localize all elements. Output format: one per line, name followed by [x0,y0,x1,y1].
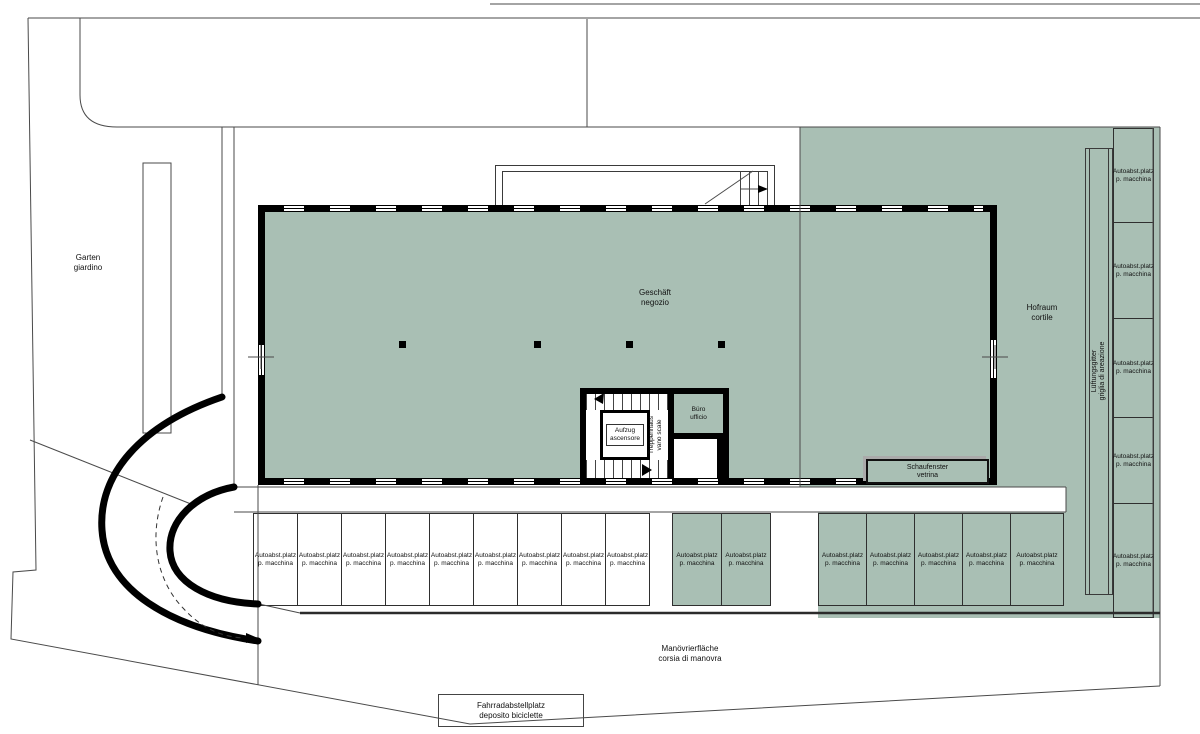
west-wall-window [258,345,265,375]
parking-stall: Autoabst.platzp. macchina [385,513,430,606]
stall-label-it: p. macchina [566,560,601,568]
stall-label-de: Autoabst.platz [475,552,516,560]
bike-storage-label-de: Fahrradabstellplatz [477,701,545,711]
stall-label-de: Autoabst.platz [1113,263,1154,271]
stall-label-it: p. macchina [390,560,425,568]
stall-label-it: p. macchina [434,560,469,568]
stairwell-label-it: vano scale [656,390,664,480]
boundary-curve-west [80,18,1160,127]
stall-label-de: Autoabst.platz [1113,453,1154,461]
stall-label-it: p. macchina [1116,561,1151,569]
stall-label-de: Autoabst.platz [676,552,717,560]
parking-stall: Autoabst.platzp. macchina [429,513,474,606]
stall-label-it: p. macchina [1116,461,1151,469]
parking-stall: Autoabst.platzp. macchina [672,513,722,606]
stall-label-de: Autoabst.platz [387,552,428,560]
courtyard-label-de: Hofraum [1002,303,1082,313]
stall-label-de: Autoabst.platz [966,552,1007,560]
stall-label-it: p. macchina [728,560,763,568]
column [626,341,633,348]
parking-stall: Autoabst.platzp. macchina [1113,417,1154,504]
stall-label-it: p. macchina [258,560,293,568]
parking-stall: Autoabst.platzp. macchina [297,513,342,606]
courtyard-label: Hofraum cortile [1002,303,1082,323]
bike-storage-box: Fahrradabstellplatz deposito biciclette [438,694,584,727]
walkway-gap [771,512,818,618]
parking-stall: Autoabst.platzp. macchina [341,513,386,606]
maneuvering-label-it: corsia di manovra [620,654,760,664]
stairwell-label: Treppenhaus vano scale [648,390,666,480]
parking-stall: Autoabst.platzp. macchina [253,513,298,606]
canopy-outline-inner [502,171,768,207]
elevator-label-box: Aufzug ascensore [606,424,644,446]
column [534,341,541,348]
stall-label-de: Autoabst.platz [1113,553,1154,561]
stall-label-de: Autoabst.platz [725,552,766,560]
stall-label-de: Autoabst.platz [343,552,384,560]
stall-label-de: Autoabst.platz [607,552,648,560]
stall-label-it: p. macchina [522,560,557,568]
stall-label-de: Autoabst.platz [519,552,560,560]
shop-window-label-it: vetrina [917,472,938,480]
stall-label-de: Autoabst.platz [255,552,296,560]
stall-label-de: Autoabst.platz [1016,552,1057,560]
office-label-de: Büro [692,406,706,414]
courtyard-label-it: cortile [1002,313,1082,323]
stall-label-it: p. macchina [302,560,337,568]
parking-stall: Autoabst.platzp. macchina [1113,503,1154,618]
parking-stall: Autoabst.platzp. macchina [605,513,650,606]
maneuvering-label: Manövrierfläche corsia di manovra [620,644,760,664]
floor-plan: Autoabst.platzp. macchina Autoabst.platz… [0,0,1200,734]
shop-label-de: Geschäft [605,288,705,298]
corner-cap [258,205,272,212]
parking-stall: Autoabst.platzp. macchina [1113,222,1154,319]
stall-label-de: Autoabst.platz [1113,360,1154,368]
vent-grille-label: Lüftungsgitter griglia di areazione [1091,151,1107,591]
office-label-it: ufficio [690,414,707,422]
garden-strip-outline [143,163,171,433]
stall-label-it: p. macchina [346,560,381,568]
stall-label-it: p. macchina [1019,560,1054,568]
shop-label: Geschäft negozio [605,288,705,308]
stall-label-it: p. macchina [873,560,908,568]
column [399,341,406,348]
maneuvering-label-de: Manövrierfläche [620,644,760,654]
parking-stall: Autoabst.platzp. macchina [866,513,915,606]
parking-stall: Autoabst.platzp. macchina [1113,318,1154,418]
stall-label-it: p. macchina [679,560,714,568]
elevator-shaft: Aufzug ascensore [600,410,650,460]
stall-label-de: Autoabst.platz [918,552,959,560]
shop-window-box: Schaufenster vetrina [866,459,989,484]
parking-stall: Autoabst.platzp. macchina [1113,128,1154,223]
parking-stall: Autoabst.platzp. macchina [473,513,518,606]
vent-grille-label-it: griglia di areazione [1099,151,1107,591]
column [718,341,725,348]
garden-label-de: Garten [48,253,128,263]
stall-label-it: p. macchina [1116,368,1151,376]
stall-label-de: Autoabst.platz [1113,168,1154,176]
parking-stall: Autoabst.platzp. macchina [1010,513,1064,606]
parking-stall: Autoabst.platzp. macchina [818,513,867,606]
ramp-outer-wall [102,397,258,641]
east-wall-window [990,340,997,378]
elevator-label-de: Aufzug [610,427,640,435]
stall-label-de: Autoabst.platz [870,552,911,560]
stall-label-it: p. macchina [921,560,956,568]
stall-label-de: Autoabst.platz [563,552,604,560]
stall-label-it: p. macchina [478,560,513,568]
stall-label-it: p. macchina [1116,271,1151,279]
walkway-band [234,487,1066,512]
stall-label-de: Autoabst.platz [822,552,863,560]
vent-grille-label-de: Lüftungsgitter [1091,151,1099,591]
parking-stall: Autoabst.platzp. macchina [914,513,963,606]
office-room: Büro ufficio [674,394,723,433]
core-west-wall [580,388,586,485]
parking-stall: Autoabst.platzp. macchina [561,513,606,606]
stairwell-label-de: Treppenhaus [648,390,656,480]
exterior-stair-treads [740,172,774,205]
shop-label-it: negozio [605,298,705,308]
garden-label: Garten giardino [48,253,128,273]
garden-label-it: giardino [48,263,128,273]
back-room-east-wall [717,439,723,478]
stall-label-it: p. macchina [825,560,860,568]
shop-window-label-de: Schaufenster [907,464,948,472]
corner-cap [983,205,997,212]
bike-storage-label-it: deposito biciclette [479,711,543,721]
drive-path-arrowhead [246,633,258,643]
parking-stall: Autoabst.platzp. macchina [962,513,1011,606]
parking-stall: Autoabst.platzp. macchina [721,513,771,606]
parking-stall: Autoabst.platzp. macchina [517,513,562,606]
corner-cap [258,478,272,485]
drive-path-dashed [156,497,244,638]
stall-label-de: Autoabst.platz [431,552,472,560]
stall-label-it: p. macchina [1116,176,1151,184]
stall-label-it: p. macchina [969,560,1004,568]
garden-diagonal-line [30,440,196,506]
stall-label-de: Autoabst.platz [299,552,340,560]
stall-label-it: p. macchina [610,560,645,568]
building-north-wall [258,205,997,212]
elevator-label-it: ascensore [610,435,640,443]
back-room [674,439,717,478]
